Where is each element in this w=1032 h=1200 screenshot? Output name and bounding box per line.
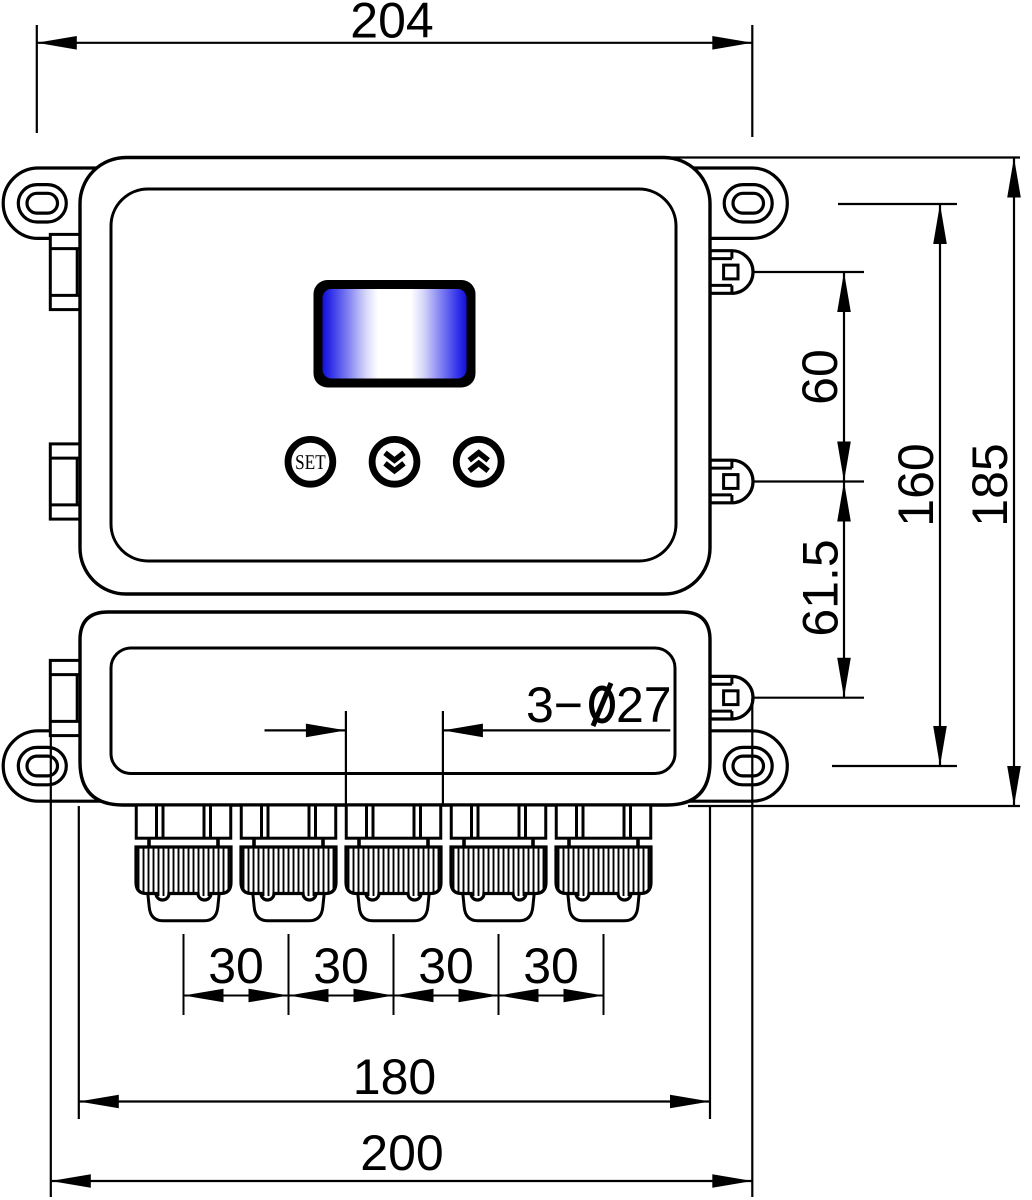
svg-text:27: 27	[616, 677, 672, 733]
svg-text:204: 204	[350, 0, 433, 49]
svg-text:60: 60	[792, 349, 848, 405]
svg-text:200: 200	[360, 1125, 443, 1181]
svg-text:30: 30	[313, 938, 369, 994]
svg-text:30: 30	[208, 938, 264, 994]
svg-text:160: 160	[888, 443, 944, 526]
svg-text:185: 185	[962, 443, 1018, 526]
svg-text:30: 30	[523, 938, 579, 994]
svg-text:3−: 3−	[526, 677, 583, 733]
svg-text:180: 180	[353, 1049, 436, 1105]
svg-text:61.5: 61.5	[793, 539, 849, 636]
svg-text:30: 30	[418, 938, 474, 994]
